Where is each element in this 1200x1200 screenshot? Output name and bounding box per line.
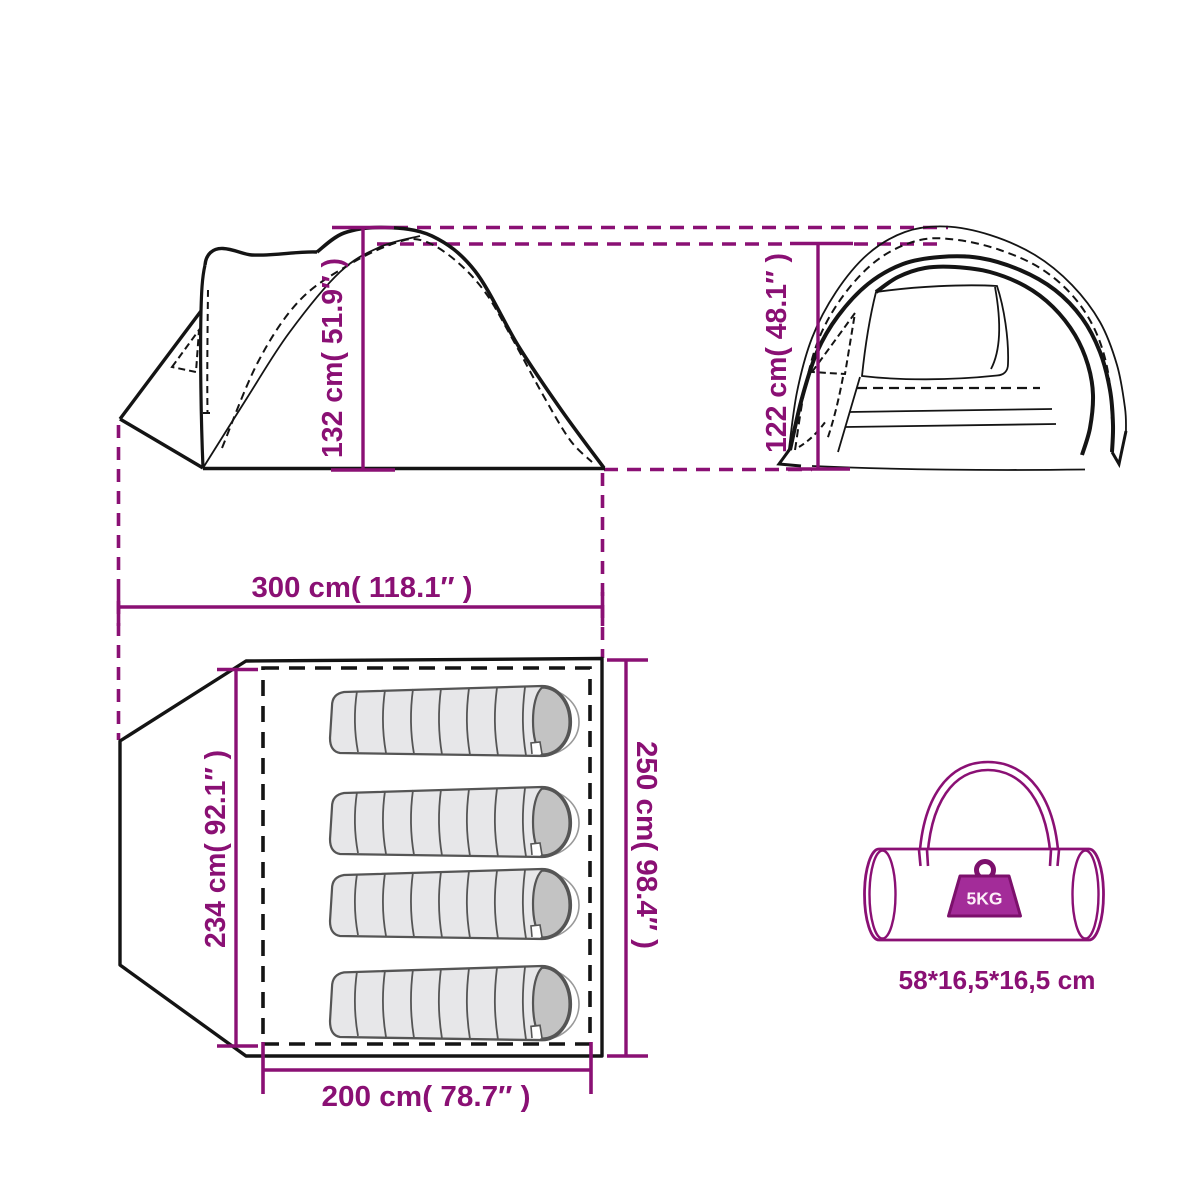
svg-text:5KG: 5KG	[967, 889, 1003, 909]
svg-text:200 cm( 78.7″ ): 200 cm( 78.7″ )	[322, 1081, 531, 1113]
svg-text:132 cm( 51.9″ ): 132 cm( 51.9″ )	[317, 258, 349, 458]
svg-text:250 cm( 98.4″ ): 250 cm( 98.4″ )	[630, 741, 662, 949]
svg-text:300 cm( 118.1″ ): 300 cm( 118.1″ )	[252, 572, 473, 604]
svg-text:58*16,5*16,5 cm: 58*16,5*16,5 cm	[899, 965, 1096, 995]
svg-text:234 cm( 92.1″ ): 234 cm( 92.1″ )	[200, 750, 232, 948]
svg-text:122 cm( 48.1″ ): 122 cm( 48.1″ )	[761, 253, 793, 453]
